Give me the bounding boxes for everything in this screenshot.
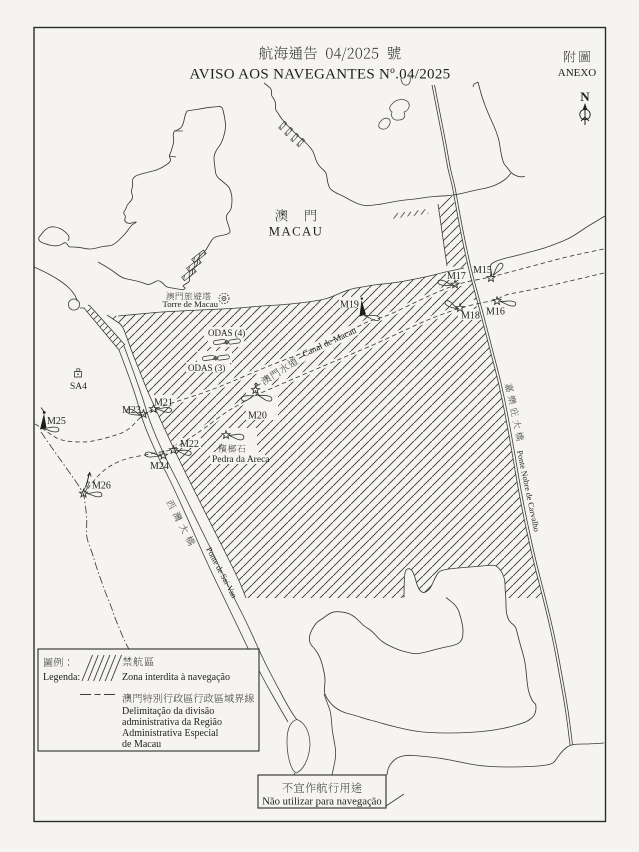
svg-text:M21: M21	[154, 398, 173, 409]
svg-text:Pedra da Areca: Pedra da Areca	[212, 455, 270, 465]
svg-text:Legenda:: Legenda:	[43, 672, 80, 683]
svg-text:M15: M15	[473, 265, 492, 276]
svg-text:Torre de Macau: Torre de Macau	[162, 299, 218, 309]
svg-text:Administrativa Especial: Administrativa Especial	[122, 728, 219, 739]
svg-text:AVISO AOS NAVEGANTES Nº.04/202: AVISO AOS NAVEGANTES Nº.04/2025	[190, 67, 451, 83]
svg-text:M23: M23	[122, 405, 141, 416]
svg-text:ODAS (3): ODAS (3)	[188, 363, 225, 373]
svg-text:ANEXO: ANEXO	[558, 67, 597, 79]
svg-text:Zona interdita à navegação: Zona interdita à navegação	[122, 672, 230, 683]
svg-text:M19: M19	[340, 300, 359, 311]
svg-text:M16: M16	[486, 307, 505, 318]
svg-text:M25: M25	[47, 416, 66, 427]
svg-text:M26: M26	[92, 481, 111, 492]
svg-text:M18: M18	[461, 311, 480, 322]
svg-text:N: N	[580, 89, 590, 104]
svg-text:SA4: SA4	[70, 382, 87, 392]
svg-text:M24: M24	[150, 461, 169, 472]
svg-text:de Macau: de Macau	[122, 739, 161, 750]
svg-text:Delimitação da divisão: Delimitação da divisão	[122, 706, 214, 717]
svg-text:MACAU: MACAU	[269, 225, 324, 239]
svg-text:M22: M22	[180, 439, 199, 450]
svg-text:ODAS (4): ODAS (4)	[208, 328, 245, 338]
svg-text:M20: M20	[248, 411, 267, 422]
svg-text:administrativa da Região: administrativa da Região	[122, 717, 222, 728]
svg-text:Não utilizar para navegação: Não utilizar para navegação	[262, 796, 382, 808]
svg-text:M17: M17	[447, 271, 466, 282]
